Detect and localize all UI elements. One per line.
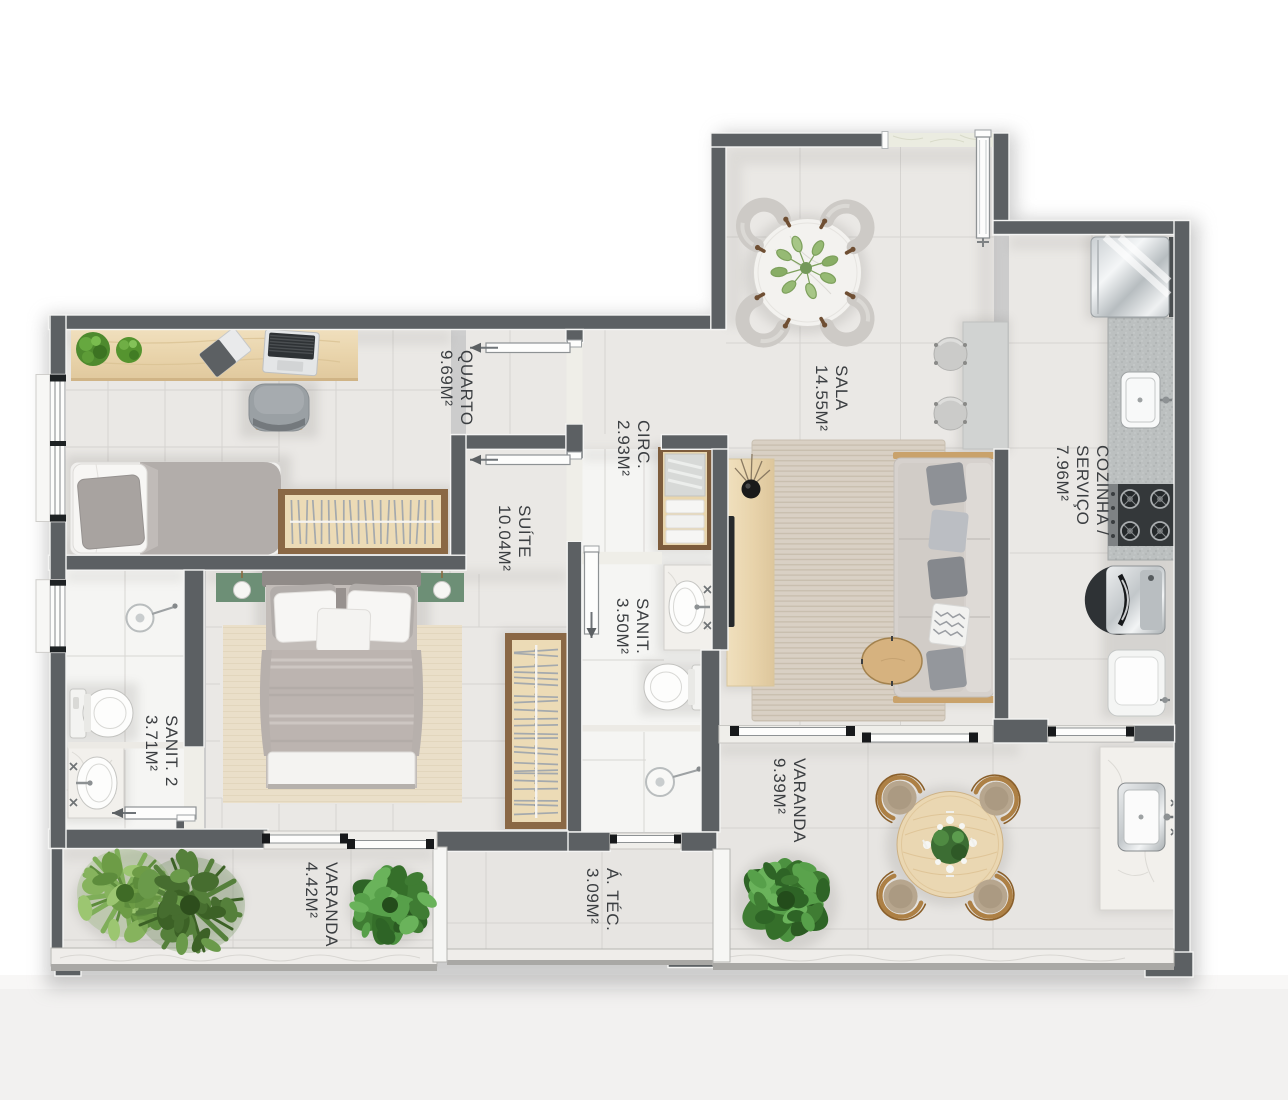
- svg-text:CIRC.2.93M²: CIRC.2.93M²: [614, 420, 653, 477]
- svg-text:SANIT.3.50M²: SANIT.3.50M²: [613, 598, 652, 655]
- svg-text:Á. TÉC.3.09M²: Á. TÉC.3.09M²: [583, 868, 622, 931]
